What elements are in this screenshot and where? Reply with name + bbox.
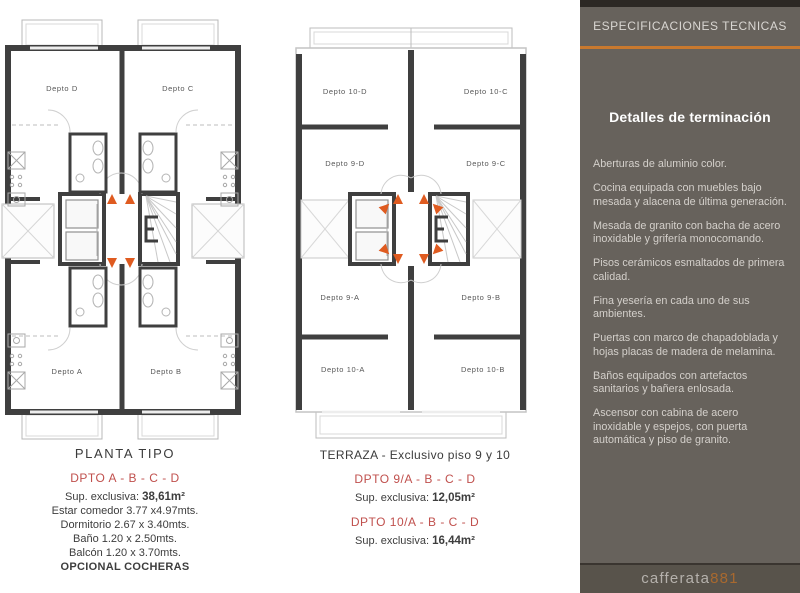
spec-item: Fina yesería en cada uno de sus ambiente… <box>593 295 787 322</box>
spec-item: Ascensor con cabina de acero inoxidable … <box>593 407 787 448</box>
room-label-depto-a: Depto A <box>52 367 83 376</box>
sup-10-line: Sup. exclusiva: 16,44m² <box>293 534 537 548</box>
cafferata-logo: cafferata881 <box>580 565 800 593</box>
bano-line: Baño 1.20 x 2.50mts. <box>15 532 235 546</box>
panel-footer: cafferata881 <box>580 563 800 593</box>
room-label-depto-c: Depto C <box>162 84 194 93</box>
elevator-core <box>60 194 104 264</box>
room-label-depto-10c: Depto 10-C <box>464 87 508 96</box>
dpto-10-title: DPTO 10/A - B - C - D <box>293 515 537 529</box>
specs-panel: ESPECIFICACIONES TECNICAS Detalles de te… <box>580 0 800 593</box>
terraza-details: DPTO 9/A - B - C - D Sup. exclusiva: 12,… <box>293 472 537 548</box>
panel-top-bar <box>580 0 800 7</box>
dormitorio-line: Dormitorio 2.67 x 3.40mts. <box>15 518 235 532</box>
panel-header-title: ESPECIFICACIONES TECNICAS <box>580 7 800 33</box>
sup-10-value: 16,44m² <box>432 535 475 547</box>
spec-item: Pisos cerámicos esmaltados de primera ca… <box>593 257 787 284</box>
spec-item: Baños equipados con artefactos sanitario… <box>593 370 787 397</box>
sup-value: 38,61m² <box>142 491 185 503</box>
room-label-depto-10b: Depto 10-B <box>461 365 505 374</box>
panel-section-title: Detalles de terminación <box>580 109 800 125</box>
room-label-depto-9b: Depto 9-B <box>461 293 500 302</box>
sup-9-line: Sup. exclusiva: 12,05m² <box>293 491 537 505</box>
floorplan-planta-tipo: Depto D Depto C Depto A Depto B <box>0 0 250 445</box>
spec-list: Aberturas de aluminio color. Cocina equi… <box>580 158 800 448</box>
sup-10-label: Sup. exclusiva: <box>355 535 432 547</box>
dpto-9-title: DPTO 9/A - B - C - D <box>293 472 537 486</box>
room-label-depto-9c: Depto 9-C <box>466 159 506 168</box>
sup-9-value: 12,05m² <box>432 492 475 504</box>
orange-divider <box>580 46 800 49</box>
logo-name: cafferata <box>641 570 710 587</box>
spec-item: Cocina equipada con muebles bajo mesada … <box>593 182 787 209</box>
room-label-depto-9a: Depto 9-A <box>320 293 359 302</box>
estar-comedor-line: Estar comedor 3.77 x4.97mts. <box>15 504 235 518</box>
room-label-depto-d: Depto D <box>46 84 78 93</box>
room-label-depto-10a: Depto 10-A <box>321 365 365 374</box>
sup-exclusiva-line: Sup. exclusiva: 38,61m² <box>15 490 235 504</box>
spec-item: Mesada de granito con bacha de acero ino… <box>593 220 787 247</box>
spec-item: Puertas con marco de chapadoblada y hoja… <box>593 332 787 359</box>
staircase <box>140 194 178 264</box>
balcon-line: Balcón 1.20 x 3.70mts. <box>15 546 235 560</box>
floorplan-terraza: Depto 10-D Depto 10-C Depto 9-D Depto 9-… <box>288 0 538 445</box>
opcional-cocheras: OPCIONAL COCHERAS <box>15 560 235 574</box>
sup-label: Sup. exclusiva: <box>65 491 142 503</box>
terraza-caption: TERRAZA - Exclusivo piso 9 y 10 <box>293 448 537 462</box>
room-label-depto-10d: Depto 10-D <box>323 87 367 96</box>
planta-tipo-details: DPTO A - B - C - D Sup. exclusiva: 38,61… <box>15 471 235 574</box>
staircase <box>430 194 468 264</box>
room-label-depto-9d: Depto 9-D <box>325 159 365 168</box>
sup-9-label: Sup. exclusiva: <box>355 492 432 504</box>
planta-tipo-caption: PLANTA TIPO <box>10 446 240 461</box>
dpto-abcd-title: DPTO A - B - C - D <box>15 471 235 485</box>
room-label-depto-b: Depto B <box>150 367 181 376</box>
logo-number: 881 <box>710 570 739 587</box>
spec-item: Aberturas de aluminio color. <box>593 158 787 172</box>
